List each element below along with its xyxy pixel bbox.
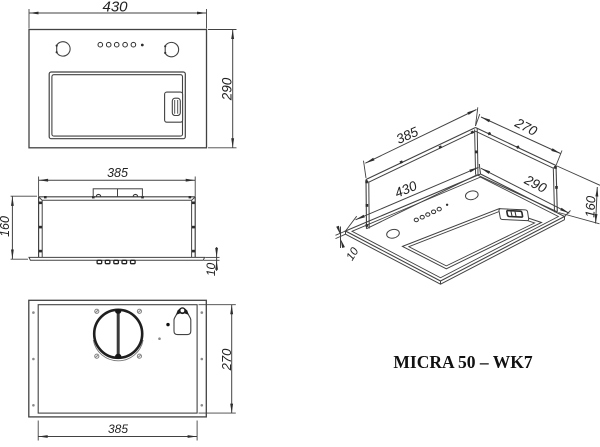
svg-text:385: 385 (108, 422, 128, 436)
svg-text:270: 270 (219, 348, 234, 371)
svg-text:MICRA 50 – WK7: MICRA 50 – WK7 (393, 352, 532, 372)
svg-text:385: 385 (107, 166, 128, 180)
svg-text:160: 160 (582, 195, 598, 218)
svg-text:10: 10 (204, 263, 218, 277)
svg-text:290: 290 (219, 77, 234, 101)
svg-text:160: 160 (0, 216, 12, 237)
svg-text:430: 430 (102, 0, 128, 16)
